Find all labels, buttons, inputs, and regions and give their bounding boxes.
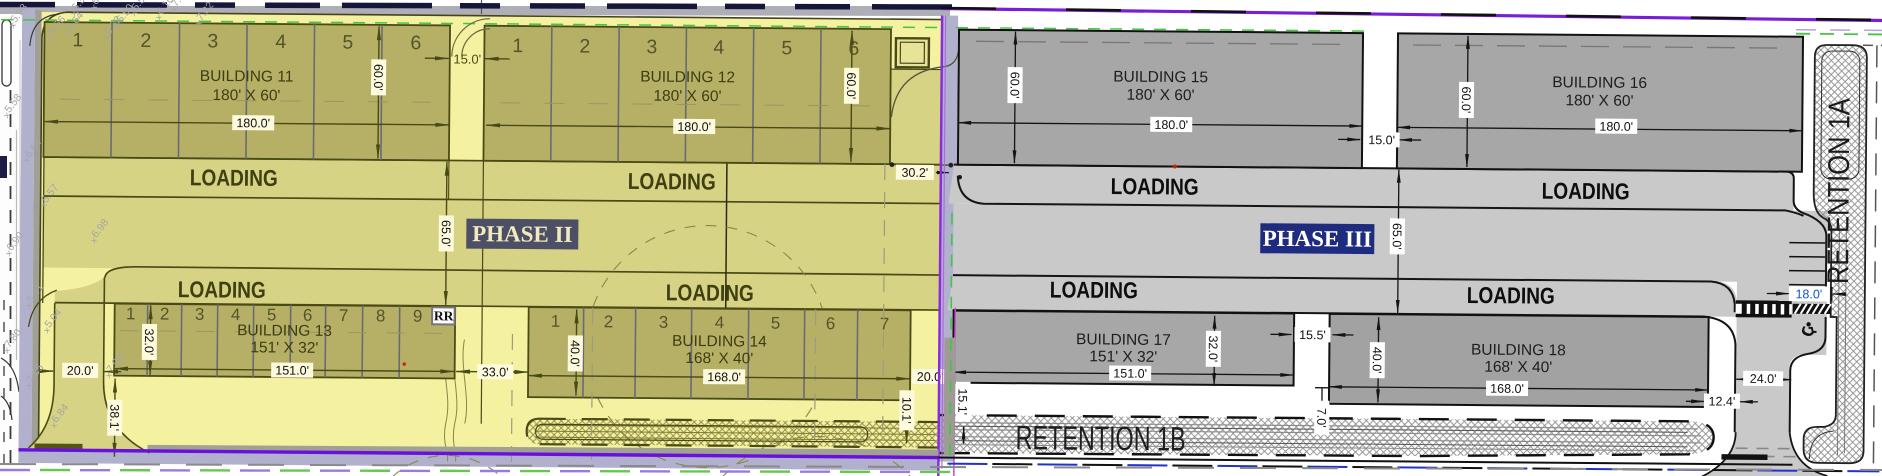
svg-text:60.0': 60.0' — [371, 64, 385, 91]
svg-text:7.0': 7.0' — [1314, 408, 1328, 428]
svg-text:5: 5 — [781, 37, 792, 59]
svg-text:180' X 60': 180' X 60' — [1126, 87, 1194, 105]
svg-text:RR: RR — [434, 308, 454, 323]
svg-text:BUILDING 13: BUILDING 13 — [237, 322, 332, 340]
svg-text:15.0': 15.0' — [1368, 133, 1395, 147]
svg-text:LOADING: LOADING — [666, 279, 754, 306]
svg-text:24.0': 24.0' — [1750, 372, 1777, 386]
svg-text:RETENTION 1A: RETENTION 1A — [1822, 98, 1857, 284]
svg-text:BUILDING 17: BUILDING 17 — [1076, 331, 1171, 349]
svg-text:33.0': 33.0' — [482, 365, 509, 379]
svg-text:40.0': 40.0' — [568, 340, 582, 367]
svg-text:65.0': 65.0' — [439, 220, 453, 247]
svg-text:4: 4 — [713, 37, 724, 59]
svg-text:168.0': 168.0' — [707, 370, 741, 384]
svg-text:8: 8 — [376, 306, 386, 325]
svg-text:2: 2 — [140, 30, 151, 52]
svg-text:1: 1 — [551, 312, 561, 331]
svg-text:3: 3 — [195, 305, 205, 324]
svg-text:RETENTION 1B: RETENTION 1B — [1015, 419, 1185, 458]
svg-text:168.0': 168.0' — [1490, 382, 1524, 396]
svg-text:2: 2 — [160, 305, 170, 324]
svg-text:32.0': 32.0' — [142, 329, 156, 356]
svg-text:40.0': 40.0' — [1370, 347, 1384, 374]
svg-text:60.0': 60.0' — [1459, 87, 1473, 114]
svg-text:151.0': 151.0' — [1113, 366, 1147, 380]
svg-text:15.0': 15.0' — [453, 51, 481, 66]
svg-text:180.0': 180.0' — [236, 116, 270, 130]
svg-text:180.0': 180.0' — [677, 120, 711, 134]
svg-text:38.1': 38.1' — [107, 404, 121, 431]
svg-text:2: 2 — [604, 312, 614, 331]
svg-text:BUILDING 15: BUILDING 15 — [1113, 68, 1208, 86]
svg-text:BUILDING 11: BUILDING 11 — [200, 68, 294, 86]
svg-text:1: 1 — [126, 304, 136, 323]
svg-text:151.0': 151.0' — [275, 363, 309, 377]
svg-text:15.5': 15.5' — [1299, 328, 1326, 342]
svg-text:32.0': 32.0' — [1206, 335, 1220, 362]
svg-text:168' X 40': 168' X 40' — [1484, 359, 1552, 377]
svg-text:7: 7 — [339, 306, 349, 325]
svg-text:20.0': 20.0' — [67, 364, 94, 378]
svg-text:9: 9 — [413, 307, 423, 326]
svg-text:LOADING: LOADING — [1111, 173, 1199, 200]
svg-text:180' X 60': 180' X 60' — [653, 88, 721, 106]
svg-text:151' X 32': 151' X 32' — [1089, 348, 1157, 366]
svg-text:2: 2 — [579, 36, 590, 58]
svg-text:6: 6 — [410, 32, 421, 54]
svg-text:PHASE II: PHASE II — [472, 221, 573, 247]
svg-text:3: 3 — [646, 36, 657, 58]
svg-text:60.0': 60.0' — [1007, 72, 1021, 99]
svg-text:7: 7 — [880, 315, 890, 334]
svg-text:BUILDING 18: BUILDING 18 — [1471, 341, 1566, 359]
svg-text:12.4': 12.4' — [1709, 394, 1736, 408]
svg-text:LOADING: LOADING — [628, 168, 716, 195]
svg-text:60.0': 60.0' — [844, 72, 858, 99]
svg-text:LOADING: LOADING — [1050, 276, 1138, 303]
svg-text:18.0': 18.0' — [1795, 287, 1822, 301]
svg-text:5: 5 — [771, 314, 781, 333]
svg-text:30.2': 30.2' — [901, 166, 928, 180]
svg-text:LOADING: LOADING — [178, 276, 266, 303]
svg-text:3: 3 — [207, 30, 218, 52]
svg-text:BUILDING 14: BUILDING 14 — [672, 333, 767, 351]
svg-text:6: 6 — [826, 314, 836, 333]
svg-text:6: 6 — [848, 38, 859, 60]
svg-text:BUILDING 16: BUILDING 16 — [1552, 74, 1647, 92]
svg-text:BUILDING 12: BUILDING 12 — [640, 69, 735, 87]
svg-text:LOADING: LOADING — [1542, 178, 1630, 205]
svg-text:LOADING: LOADING — [1467, 282, 1555, 309]
svg-text:15.1': 15.1' — [955, 388, 969, 415]
svg-text:4: 4 — [275, 31, 286, 53]
svg-text:180' X 60': 180' X 60' — [212, 87, 280, 105]
svg-text:180.0': 180.0' — [1599, 120, 1633, 134]
svg-text:180.0': 180.0' — [1154, 118, 1188, 132]
svg-text:180' X 60': 180' X 60' — [1565, 92, 1633, 110]
svg-text:1: 1 — [512, 35, 523, 57]
svg-text:LOADING: LOADING — [190, 164, 278, 191]
svg-text:151' X 32': 151' X 32' — [250, 339, 318, 357]
svg-text:10.1': 10.1' — [899, 397, 913, 424]
svg-text:65.0': 65.0' — [1390, 223, 1404, 250]
svg-text:3: 3 — [659, 313, 669, 332]
svg-text:PHASE III: PHASE III — [1263, 226, 1373, 252]
svg-text:4: 4 — [715, 313, 725, 332]
svg-text:5: 5 — [342, 32, 353, 54]
svg-text:168' X 40': 168' X 40' — [685, 350, 753, 368]
